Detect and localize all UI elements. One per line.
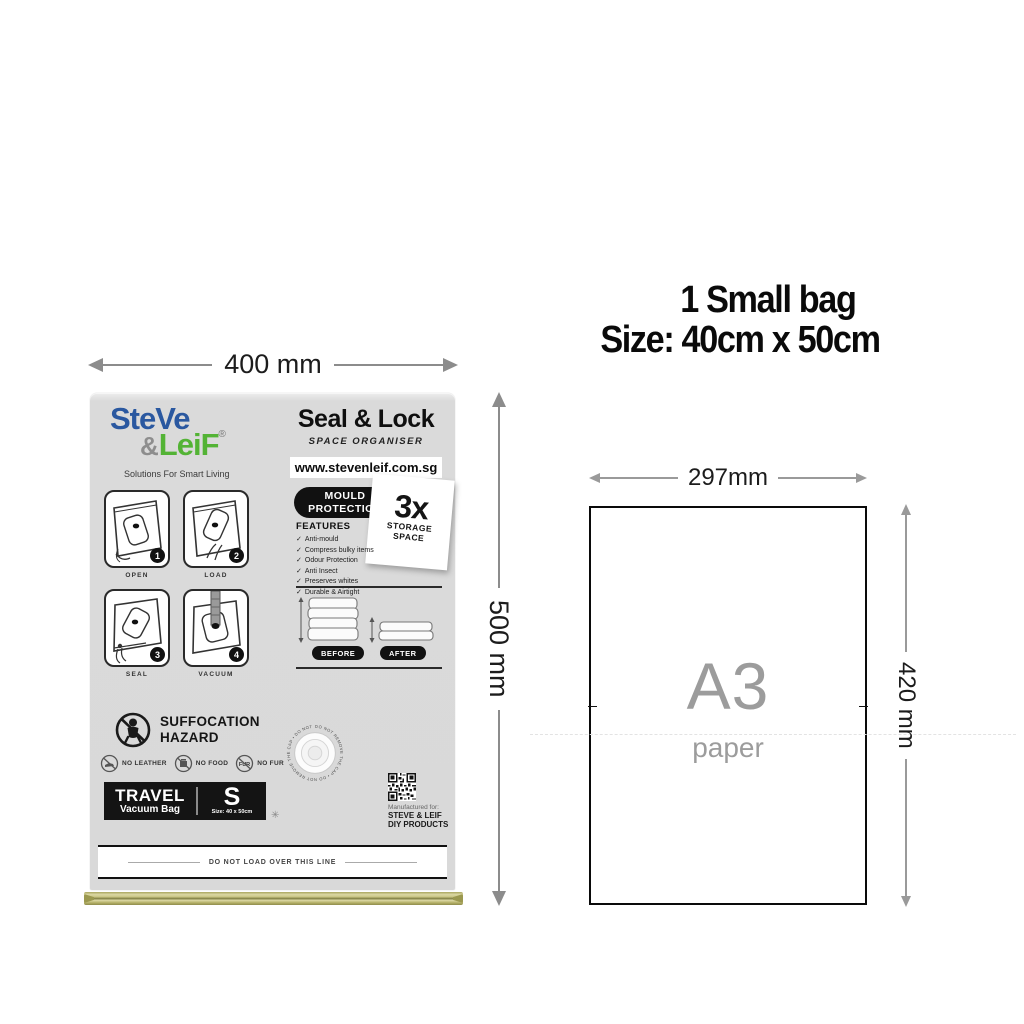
no-leather-item: NO LEATHER [100, 754, 167, 773]
no-fur-item: FUR NO FUR [235, 754, 284, 773]
check-icon: ✓ [296, 557, 302, 565]
step-caption-open: OPEN [104, 572, 170, 579]
step-panel-load: 2 [183, 490, 249, 568]
manufacturer-block: Manufactured for: STEVE & LEIF DIY PRODU… [388, 773, 452, 829]
product-title: Seal & Lock [282, 405, 450, 434]
size-bar: TRAVEL Vacuum Bag S Size: 40 x 50cm [104, 782, 266, 820]
dimension-line [778, 477, 856, 479]
load-limit-text: DO NOT LOAD OVER THIS LINE [200, 859, 345, 866]
dimension-line [600, 477, 678, 479]
vacuum-valve: DO NOT REMOVE THE CAP • DO NOT REMOVE TH… [284, 722, 346, 784]
center-tick [588, 706, 597, 708]
paper-height-label: 420 mm [892, 652, 920, 759]
check-icon: ✓ [296, 568, 302, 576]
feature-label: Anti-mould [305, 536, 338, 544]
after-label: AFTER [380, 646, 426, 660]
website-label: www.stevenleif.com.sg [290, 457, 443, 478]
feature-item: ✓Anti Insect [296, 568, 396, 576]
fold-guide-dashed-line [530, 734, 1016, 735]
product-subtitle: SPACE ORGANISER [282, 436, 450, 447]
dimension-line [498, 407, 500, 588]
size-text: Size: 40 x 50cm [212, 809, 253, 815]
no-fur-icon: FUR [235, 754, 254, 773]
bag-width-label: 400 mm [212, 349, 334, 380]
manufacturer-name: STEVE & LEIF [388, 811, 452, 820]
bag-type-label: TRAVEL [115, 787, 185, 804]
no-leather-icon [100, 754, 119, 773]
dimension-line [905, 515, 907, 652]
bag-width-dimension: 400 mm [88, 349, 458, 380]
brand-name-leif: LeiF [159, 427, 219, 462]
feature-item: ✓Odour Protection [296, 557, 396, 565]
paper-size-name: A3 [687, 648, 770, 724]
registered-mark-icon: ® [219, 429, 226, 440]
step-caption-seal: SEAL [104, 671, 170, 678]
vacuum-bag-packaging: SteVe &LeiF® Solutions For Smart Living … [90, 393, 455, 890]
product-comparison-image: 400 mm SteVe &LeiF® Solutions For Smart … [0, 0, 1024, 1024]
dimension-line [334, 364, 443, 366]
suffocation-hazard-warning: SUFFOCATION HAZARD [114, 711, 260, 749]
bag-product-label: Vacuum Bag [120, 804, 180, 815]
paper-type-label: paper [692, 732, 764, 764]
manufacturer-division: DIY PRODUCTS [388, 820, 452, 829]
step-number-badge: 4 [229, 647, 244, 662]
features-heading: FEATURES [296, 521, 396, 532]
dimension-line [103, 364, 212, 366]
comparison-title: 1 Small bag Size: 40cm x 50cm [592, 281, 889, 361]
bag-height-label: 500 mm [483, 588, 514, 710]
brand-name-line2: &LeiF® [140, 427, 270, 463]
hazard-line1: SUFFOCATION [160, 714, 260, 730]
brand-ampersand: & [140, 431, 158, 461]
divider [296, 667, 442, 669]
arrow-up-icon [492, 392, 506, 407]
dimension-line [498, 710, 500, 891]
paper-width-label: 297mm [678, 464, 778, 492]
product-header: Seal & Lock SPACE ORGANISER www.stevenle… [282, 405, 450, 478]
step-number-badge: 3 [150, 647, 165, 662]
check-icon: ✓ [296, 536, 302, 544]
no-fur-label: NO FUR [257, 760, 284, 767]
step-number-badge: 1 [150, 548, 165, 563]
no-food-label: NO FOOD [196, 760, 228, 767]
no-food-icon [174, 754, 193, 773]
hazard-line2: HAZARD [160, 730, 260, 746]
center-tick [859, 706, 868, 708]
arrow-down-icon [901, 896, 911, 907]
divider [296, 586, 442, 588]
valve-illustration: DO NOT REMOVE THE CAP • DO NOT REMOVE TH… [284, 722, 346, 784]
arrow-right-icon [856, 473, 867, 483]
clothes-stack-illustration [294, 596, 446, 644]
a3-paper-sheet: A3 paper [589, 506, 867, 905]
zipper-seal [84, 892, 463, 905]
dimension-line [905, 759, 907, 896]
check-icon: ✓ [296, 547, 302, 555]
no-food-item: NO FOOD [174, 754, 228, 773]
load-limit-line [345, 862, 417, 863]
snowflake-icon: ✳ [271, 810, 279, 821]
arrow-down-icon [492, 891, 506, 906]
feature-label: Anti Insect [305, 568, 338, 576]
hazard-text: SUFFOCATION HAZARD [160, 714, 260, 745]
title-line1: 1 Small bag [647, 281, 888, 321]
brand-logo: SteVe &LeiF® Solutions For Smart Living [110, 401, 270, 479]
step-panel-vacuum: 4 [183, 589, 249, 667]
brand-tagline: Solutions For Smart Living [124, 469, 270, 479]
arrow-up-icon [901, 504, 911, 515]
size-bar-right: S Size: 40 x 50cm [198, 782, 266, 820]
load-limit-line [128, 862, 200, 863]
step-panel-seal: 3 [104, 589, 170, 667]
feature-item: ✓Anti-mould [296, 536, 396, 544]
before-label: BEFORE [312, 646, 364, 660]
step-panel-open: 1 [104, 490, 170, 568]
step-caption-vacuum: VACUUM [183, 671, 249, 678]
feature-item: ✓Compress bulky items [296, 547, 396, 555]
step-number-badge: 2 [229, 548, 244, 563]
size-letter: S [224, 787, 241, 808]
suffocation-hazard-icon [114, 711, 152, 749]
qr-code [388, 773, 416, 801]
feature-label: Compress bulky items [305, 547, 374, 555]
arrow-left-icon [589, 473, 600, 483]
load-limit-band: DO NOT LOAD OVER THIS LINE [98, 845, 447, 879]
paper-height-dimension: 420 mm [892, 504, 920, 907]
step-caption-load: LOAD [183, 572, 249, 579]
size-bar-left: TRAVEL Vacuum Bag [104, 782, 196, 820]
title-line2: Size: 40cm x 50cm [592, 321, 889, 361]
before-after-comparison: BEFORE AFTER [294, 596, 446, 664]
no-leather-label: NO LEATHER [122, 760, 167, 767]
manufactured-for-label: Manufactured for: [388, 804, 452, 811]
bag-height-dimension: 500 mm [483, 392, 514, 906]
arrow-right-icon [443, 358, 458, 372]
arrow-left-icon [88, 358, 103, 372]
feature-label: Odour Protection [305, 557, 358, 565]
paper-width-dimension: 297mm [589, 464, 867, 492]
